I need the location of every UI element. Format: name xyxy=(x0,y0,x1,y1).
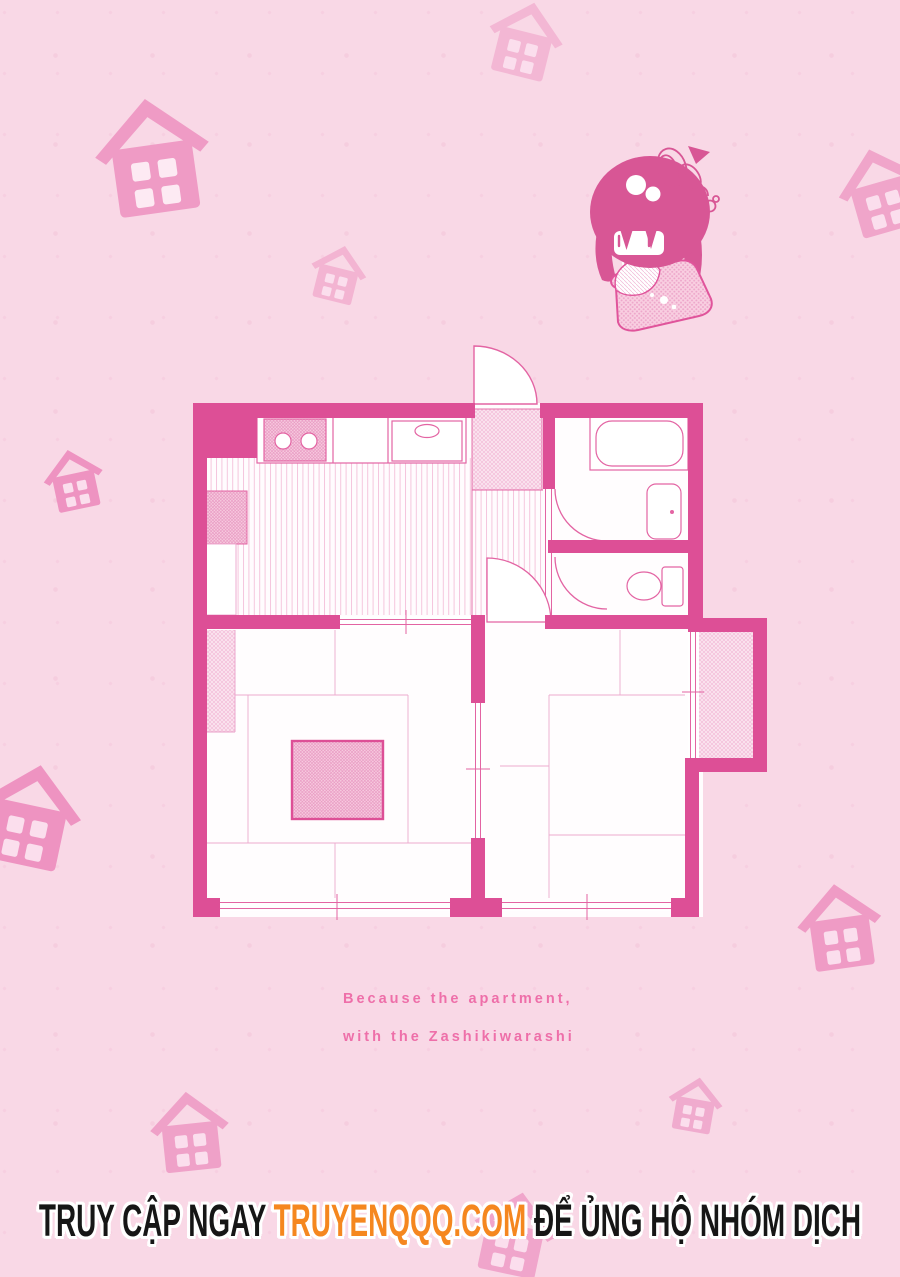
washbasin-faucet xyxy=(670,510,674,514)
kitchen-counter xyxy=(257,415,466,463)
closet xyxy=(699,632,753,758)
footer-suffix: ĐỂ ỦNG HỘ NHÓM DỊCH xyxy=(526,1195,861,1246)
house-icon xyxy=(789,876,891,978)
hair-ornament-flag xyxy=(688,146,710,164)
toilet-tank xyxy=(662,567,683,606)
footer-site-name: TRUYENQQQ.COM xyxy=(274,1195,527,1246)
house-icon xyxy=(144,1086,236,1178)
manga-bonus-page: Because the apartment, with the Zashikiw… xyxy=(0,0,900,1277)
stove-burner xyxy=(275,433,291,449)
footer-prefix: TRUY CẬP NGAY xyxy=(39,1195,274,1246)
house-icon xyxy=(661,1071,728,1138)
footer-banner: TRUY CẬP NGAY TRUYENQQQ.COM ĐỂ ỦNG HỘ NH… xyxy=(0,1172,900,1269)
sink-drain xyxy=(415,425,439,438)
footer-text: TRUY CẬP NGAY TRUYENQQQ.COM ĐỂ ỦNG HỘ NH… xyxy=(39,1195,861,1247)
character-face xyxy=(614,231,664,255)
washbasin xyxy=(647,484,681,539)
house-icon xyxy=(36,442,112,518)
kotatsu-table xyxy=(292,741,383,819)
house-icon xyxy=(84,88,222,226)
toilet-bowl xyxy=(627,572,661,600)
caption-line-1: Because the apartment, xyxy=(343,980,575,1018)
stove-burner xyxy=(301,433,317,449)
cabinet xyxy=(206,544,236,615)
character-head xyxy=(590,156,710,268)
caption: Because the apartment, with the Zashikiw… xyxy=(343,980,575,1056)
house-icon xyxy=(0,752,94,880)
bathtub xyxy=(596,421,683,466)
kitchen-side-closet xyxy=(207,630,235,732)
entrance-door xyxy=(474,346,537,404)
hair-shine xyxy=(626,175,646,195)
house-icon xyxy=(825,135,900,246)
caption-line-2: with the Zashikiwarashi xyxy=(343,1018,575,1056)
house-icon xyxy=(477,0,574,88)
hair-shine xyxy=(646,187,661,202)
refrigerator xyxy=(206,491,247,544)
floor-plan-diagram xyxy=(185,338,775,925)
entrance-genkan xyxy=(472,409,542,490)
house-icon xyxy=(302,238,375,311)
zashikiwarashi-character xyxy=(560,135,730,345)
